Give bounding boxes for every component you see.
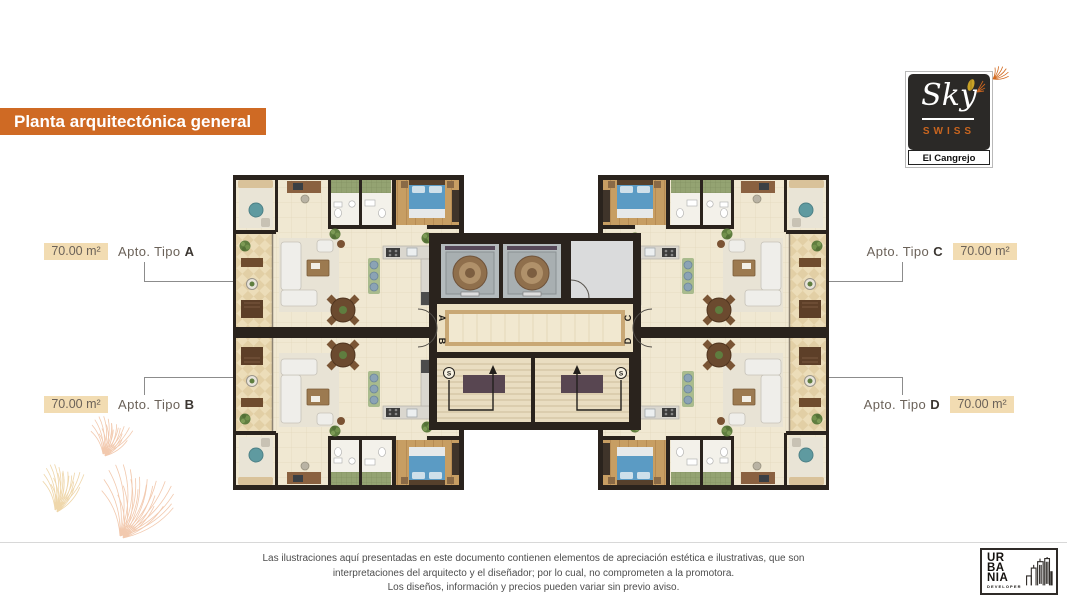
apartment-label-d: Apto. Tipo D — [817, 396, 940, 413]
apartment-label-c-text: Apto. Tipo — [867, 244, 930, 259]
unit-marker-d: D — [623, 337, 633, 344]
disclaimer-line-1: Las ilustraciones aquí presentadas en es… — [0, 552, 1067, 567]
area-badge-c: 70.00 m² — [953, 243, 1017, 260]
skyline-icon — [1025, 553, 1053, 591]
leaf-icon — [962, 76, 986, 100]
stair-marker-left: S — [447, 371, 452, 378]
apartment-letter-a: A — [185, 244, 195, 259]
apartment-label-a: Apto. Tipo A — [118, 243, 194, 260]
floor-plan: S S A B C D — [230, 172, 832, 494]
page-title: Planta arquitectónica general — [0, 108, 266, 135]
elevator-2 — [503, 244, 561, 298]
disclaimer-line-2: interpretaciones del arquitecto y el dis… — [0, 567, 1067, 582]
brand-underline — [922, 118, 974, 120]
elevator-1 — [441, 244, 499, 298]
unit-marker-c: C — [623, 314, 633, 321]
unit-marker-a: A — [437, 315, 447, 322]
leader-line-d-vertical — [902, 377, 903, 395]
footer-divider — [0, 542, 1067, 543]
apartment-letter-b: B — [185, 397, 195, 412]
brand-logo-box: Sky SWISS — [908, 74, 990, 150]
apartment-label-c: Apto. Tipo C — [820, 243, 943, 260]
disclaimer-line-3: Los diseños, información y precios puede… — [0, 581, 1067, 596]
leader-line-c-vertical — [902, 262, 903, 281]
area-badge-d: 70.00 m² — [950, 396, 1014, 413]
leaf-sketch-decoration — [25, 408, 175, 548]
disclaimer: Las ilustraciones aquí presentadas en es… — [0, 552, 1067, 596]
apartment-label-d-text: Apto. Tipo — [864, 397, 927, 412]
brand-tagline: SWISS — [908, 126, 990, 137]
leader-line-a-vertical — [144, 262, 145, 281]
utility-room — [571, 241, 633, 298]
apartment-label-a-text: Apto. Tipo — [118, 244, 181, 259]
dragonfly-sketch-icon — [988, 60, 1014, 82]
area-badge-a: 70.00 m² — [44, 243, 108, 260]
building-core: S S A B C D — [418, 233, 652, 430]
unit-marker-b: B — [437, 338, 447, 345]
developer-descriptor: DEVELOPER — [987, 584, 1022, 589]
developer-name-line-3: NIA — [987, 573, 1022, 583]
developer-logo: UR BA NIA DEVELOPER — [980, 548, 1058, 595]
apartment-letter-c: C — [933, 244, 943, 259]
leader-line-b-vertical — [144, 377, 145, 395]
brand-logo: Sky SWISS El Cangrejo — [905, 71, 993, 168]
stair-marker-right: S — [619, 371, 624, 378]
apartment-letter-d: D — [930, 397, 940, 412]
brand-location: El Cangrejo — [908, 150, 990, 165]
stairwell-right — [535, 358, 629, 422]
